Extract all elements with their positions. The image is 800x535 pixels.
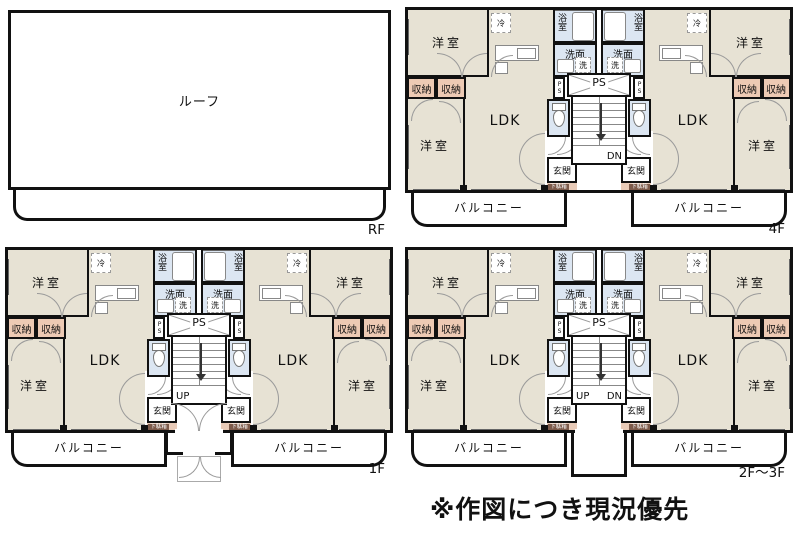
pipe-shaft: PS xyxy=(167,313,231,337)
ps-label: PS xyxy=(590,316,608,329)
stairs-arrow xyxy=(200,343,202,375)
ps-label: PS xyxy=(190,316,208,329)
common-core: PS DN xyxy=(405,7,793,243)
floor-plan-2f-3f: 洋室 収納 収納 洋室 LDK 冷 浴室 洗面洗 PS 玄関 下駄箱 xyxy=(405,247,793,483)
stairs-arrow-head xyxy=(596,134,606,141)
ps-label: PS xyxy=(590,76,608,89)
drawing-note: ※作図につき現況優先 xyxy=(430,490,689,526)
floor-plan-sheet: ルーフ RF 洋室 収納 収納 洋室 LDK 冷 浴室 洗面洗 PS 玄関 下駄… xyxy=(0,0,800,535)
floor-tag-2f-3f: 2F〜3F xyxy=(739,461,785,481)
stairs-arrow-head xyxy=(196,374,206,381)
staircase: DN xyxy=(571,95,627,165)
up-label: UP xyxy=(576,391,589,402)
floor-plan-4f: 洋室 収納 収納 洋室 LDK 冷 浴室 洗面洗 PS 玄関 下駄箱 xyxy=(405,7,793,239)
floor-tag-rf: RF xyxy=(368,222,385,238)
stairs-arrow xyxy=(600,343,602,375)
stair-landing xyxy=(571,433,627,477)
floor-tag-1f: 1F xyxy=(369,461,385,477)
down-label: DN xyxy=(607,391,622,402)
entry-door-arc xyxy=(171,403,199,431)
pipe-shaft: PS xyxy=(567,313,631,337)
roof-area: ルーフ xyxy=(8,10,391,190)
common-core: PS UP xyxy=(5,247,393,483)
staircase: UP DN xyxy=(571,335,627,405)
roof-label: ルーフ xyxy=(179,91,220,110)
entry-door-arc xyxy=(199,403,227,431)
stairs-arrow xyxy=(600,103,602,135)
floor-tag-4f: 4F xyxy=(769,221,785,237)
floor-plan-rf: ルーフ RF xyxy=(8,8,393,240)
down-label: DN xyxy=(607,151,622,162)
pipe-shaft: PS xyxy=(567,73,631,97)
floor-plan-1f: 洋室 収納 収納 洋室 LDK 冷 浴室 洗面洗 PS 玄関 下駄箱 xyxy=(5,247,393,483)
common-core: PS UP DN xyxy=(405,247,793,483)
stairs-arrow-head xyxy=(596,374,606,381)
roof-parapet xyxy=(13,190,386,221)
up-label: UP xyxy=(176,391,189,402)
staircase: UP xyxy=(171,335,227,405)
